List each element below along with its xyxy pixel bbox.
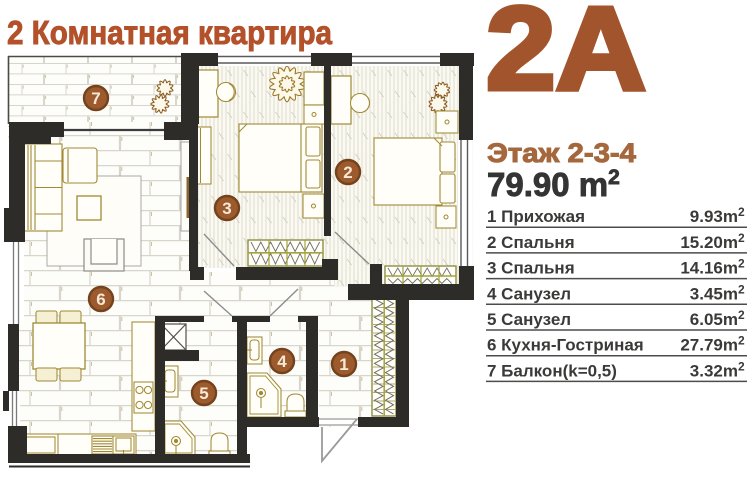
svg-text:2: 2 xyxy=(343,163,352,182)
svg-text:9.93m: 9.93m xyxy=(690,207,738,226)
svg-text:5 Санузел: 5 Санузел xyxy=(487,310,571,329)
svg-text:2 Комнатная квартира: 2 Комнатная квартира xyxy=(7,14,333,51)
svg-text:2: 2 xyxy=(738,205,745,219)
svg-text:2A: 2A xyxy=(486,0,646,115)
svg-text:2: 2 xyxy=(738,334,745,348)
svg-text:Этаж 2-3-4: Этаж 2-3-4 xyxy=(487,138,636,168)
svg-text:3: 3 xyxy=(222,199,231,218)
svg-text:3.32m: 3.32m xyxy=(690,361,738,380)
svg-text:14.16m: 14.16m xyxy=(680,259,738,278)
svg-text:15.20m: 15.20m xyxy=(680,233,738,252)
svg-text:4: 4 xyxy=(277,352,287,371)
svg-text:5: 5 xyxy=(199,384,208,403)
svg-text:4 Санузел: 4 Санузел xyxy=(487,284,571,303)
svg-text:7: 7 xyxy=(91,89,100,108)
svg-text:6.05m: 6.05m xyxy=(690,310,738,329)
svg-text:3.45m: 3.45m xyxy=(690,284,738,303)
svg-text:2: 2 xyxy=(738,231,745,245)
svg-text:3 Спальня: 3 Спальня xyxy=(487,259,575,278)
svg-text:1 Прихожая: 1 Прихожая xyxy=(487,207,585,226)
svg-text:2: 2 xyxy=(738,282,745,296)
svg-text:6 Кухня-Гостриная: 6 Кухня-Гостриная xyxy=(487,336,644,355)
svg-text:2: 2 xyxy=(738,308,745,322)
svg-text:2: 2 xyxy=(738,257,745,271)
svg-text:7 Балкон(k=0,5): 7 Балкон(k=0,5) xyxy=(487,361,617,380)
svg-text:27.79m: 27.79m xyxy=(680,336,738,355)
svg-text:79.90 m2: 79.90 m2 xyxy=(487,166,620,203)
svg-text:1: 1 xyxy=(339,355,348,374)
svg-text:2 Спальня: 2 Спальня xyxy=(487,233,575,252)
svg-text:6: 6 xyxy=(96,290,105,309)
svg-text:2: 2 xyxy=(738,359,745,373)
